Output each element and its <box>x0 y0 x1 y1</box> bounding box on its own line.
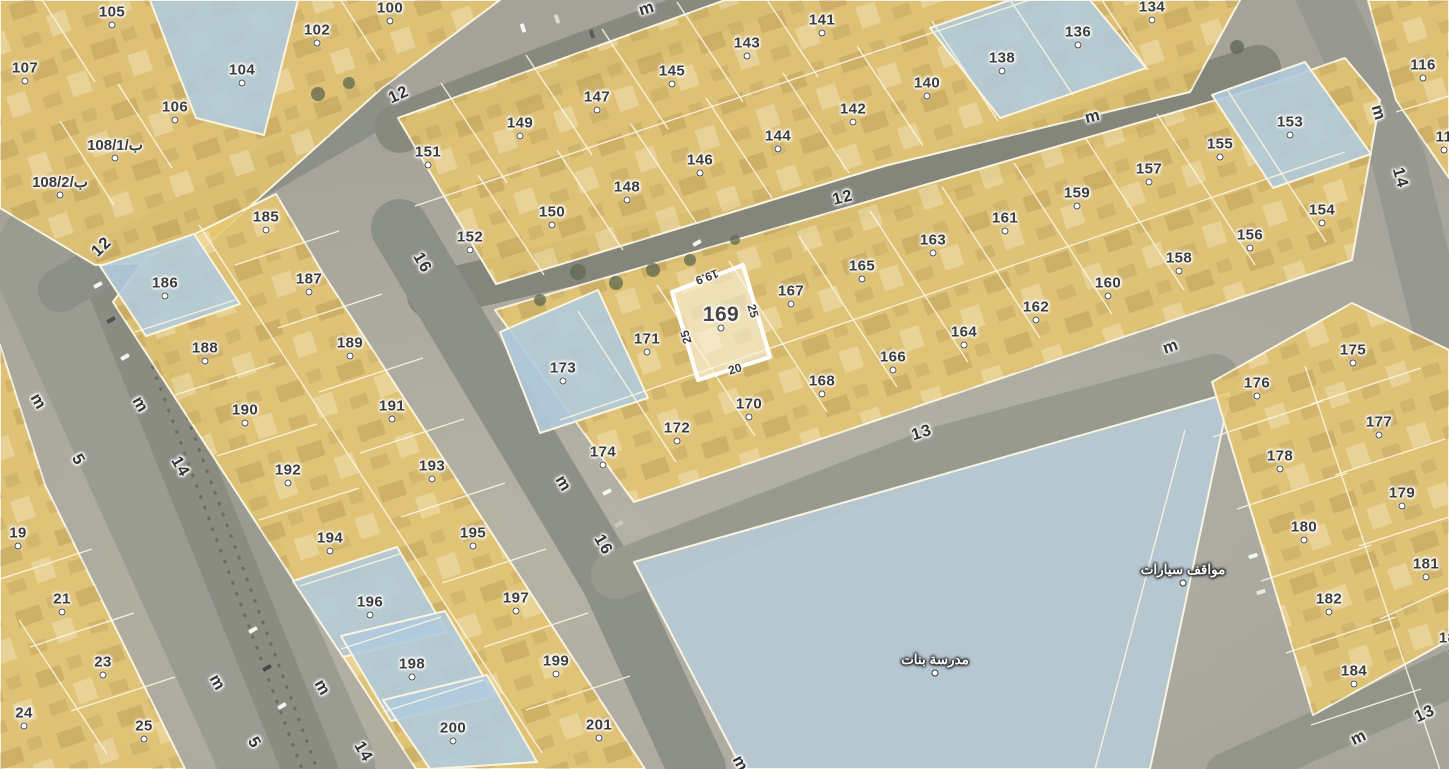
parcel-label-188[interactable]: 188 <box>192 340 218 357</box>
parcel-label-190[interactable]: 190 <box>232 402 258 419</box>
parcel-label-184[interactable]: 184 <box>1341 663 1367 680</box>
dimension-label-2: 25 <box>744 303 761 320</box>
parcel-label-102[interactable]: 102 <box>304 22 330 39</box>
parcel-label-197[interactable]: 197 <box>503 590 529 607</box>
parcel-label-192[interactable]: 192 <box>275 462 301 479</box>
parcel-marker-161 <box>1002 228 1009 235</box>
parcel-label-163[interactable]: 163 <box>920 232 946 249</box>
parcel-label-189[interactable]: 189 <box>337 335 363 352</box>
parcel-label-181[interactable]: 181 <box>1413 556 1439 573</box>
parcel-marker-184 <box>1351 681 1358 688</box>
parcel-label-169[interactable]: 169 <box>703 303 739 327</box>
parcel-label-167[interactable]: 167 <box>778 283 804 300</box>
parcel-label-159[interactable]: 159 <box>1064 185 1090 202</box>
street-label-m-22: m <box>728 753 752 769</box>
parcel-label-191[interactable]: 191 <box>379 398 405 415</box>
parcel-marker-11 <box>1441 147 1448 154</box>
parcel-marker-156 <box>1247 245 1254 252</box>
parcel-label-194[interactable]: 194 <box>317 530 343 547</box>
parcel-marker-153 <box>1287 132 1294 139</box>
parcel-label-172[interactable]: 172 <box>664 420 690 437</box>
parcel-label-166[interactable]: 166 <box>880 349 906 366</box>
parcel-label-24[interactable]: 24 <box>15 705 33 722</box>
parcel-label-199[interactable]: 199 <box>543 653 569 670</box>
street-label-13-20: 13 <box>1412 701 1439 727</box>
street-label-m-18: m <box>310 676 334 699</box>
dimension-label-0: 19.9 <box>694 266 721 287</box>
parcel-label-162[interactable]: 162 <box>1023 299 1049 316</box>
street-label-m-4: m <box>1083 106 1103 128</box>
street-label-m-0: m <box>637 0 658 20</box>
parcel-marker-100 <box>387 18 394 25</box>
street-label-m-21: m <box>1348 726 1370 750</box>
parcel-marker-157 <box>1146 179 1153 186</box>
parcel-label-175[interactable]: 175 <box>1340 342 1366 359</box>
parcel-marker-177 <box>1376 432 1383 439</box>
street-label-5-13: 5 <box>67 451 89 469</box>
parcel-marker-158 <box>1176 268 1183 275</box>
area-marker-0 <box>932 670 939 677</box>
parcel-label-158[interactable]: 158 <box>1166 250 1192 267</box>
parcel-label-168[interactable]: 168 <box>809 373 835 390</box>
parcel-label-195[interactable]: 195 <box>460 525 486 542</box>
parcel-label-153[interactable]: 153 <box>1277 114 1303 131</box>
parcel-marker-169 <box>718 325 725 332</box>
parcel-marker-198 <box>409 674 416 681</box>
parcel-label-176[interactable]: 176 <box>1244 375 1270 392</box>
parcel-marker-166 <box>890 367 897 374</box>
street-label-16-9: 16 <box>590 531 617 558</box>
parcel-marker-197 <box>513 608 520 615</box>
parcel-marker-191 <box>389 416 396 423</box>
parcel-marker-196 <box>367 612 374 619</box>
parcel-marker-25 <box>141 736 148 743</box>
parcel-marker-180 <box>1301 537 1308 544</box>
parcel-label-149[interactable]: 149 <box>507 115 533 132</box>
parcel-label-100[interactable]: 100 <box>377 0 403 17</box>
parcel-marker-134 <box>1149 17 1156 24</box>
parcel-label-145[interactable]: 145 <box>659 63 685 80</box>
street-label-m-11: m <box>1160 335 1181 358</box>
parcel-marker-194 <box>327 548 334 555</box>
street-label-13-10: 13 <box>909 421 934 445</box>
parcel-label-178[interactable]: 178 <box>1267 448 1293 465</box>
street-label-m-5: m <box>1367 103 1390 123</box>
parcel-marker-200 <box>450 738 457 745</box>
parcel-marker-187 <box>306 289 313 296</box>
parcel-marker-138 <box>999 68 1006 75</box>
parcel-marker-186 <box>162 293 169 300</box>
parcel-label-136[interactable]: 136 <box>1065 24 1091 41</box>
parcel-label-107[interactable]: 107 <box>12 60 38 77</box>
parcel-marker-159 <box>1074 203 1081 210</box>
parcel-marker-104 <box>239 80 246 87</box>
parcel-label-160[interactable]: 160 <box>1095 275 1121 292</box>
parcel-marker-105 <box>109 22 116 29</box>
parcel-marker-154 <box>1319 220 1326 227</box>
parcel-marker-143 <box>744 53 751 60</box>
parcel-label-173[interactable]: 173 <box>550 360 576 377</box>
parcel-label-201[interactable]: 201 <box>586 717 612 734</box>
map-viewport[interactable]: 105107106104102100ب/108/1ب/108/215114914… <box>0 0 1449 769</box>
street-label-12-1: 12 <box>386 82 413 108</box>
parcel-marker-24 <box>21 723 28 730</box>
street-label-m-12: m <box>26 390 50 413</box>
parcel-marker-141 <box>819 30 826 37</box>
parcel-marker-140 <box>924 93 931 100</box>
parcel-marker-149 <box>517 133 524 140</box>
parcel-marker-171 <box>644 349 651 356</box>
parcel-label-177[interactable]: 177 <box>1366 414 1392 431</box>
parcel-marker-199 <box>553 671 560 678</box>
parcel-marker-201 <box>596 735 603 742</box>
parcel-label-174[interactable]: 174 <box>590 444 616 461</box>
parcel-marker-170 <box>746 414 753 421</box>
parcel-label-21[interactable]: 21 <box>53 591 71 608</box>
parcel-label-182[interactable]: 182 <box>1316 591 1342 608</box>
parcel-label-179[interactable]: 179 <box>1389 485 1415 502</box>
parcel-marker---108-1 <box>112 155 119 162</box>
parcel-label-116[interactable]: 116 <box>1410 57 1435 74</box>
parcel-label-157[interactable]: 157 <box>1136 161 1162 178</box>
parcel-marker-192 <box>285 480 292 487</box>
street-label-14-15: 14 <box>167 453 194 480</box>
parcel-label-155[interactable]: 155 <box>1207 136 1233 153</box>
parcel-label-193[interactable]: 193 <box>419 458 445 475</box>
parcel-label-185[interactable]: 185 <box>253 209 279 226</box>
parcel-label-180[interactable]: 180 <box>1291 519 1317 536</box>
parcel-marker-147 <box>594 107 601 114</box>
street-label-12-3: 12 <box>831 186 856 209</box>
parcel-label-164[interactable]: 164 <box>951 324 977 341</box>
area-label-0[interactable]: مدرسة بنات <box>901 652 969 668</box>
parcel-marker-190 <box>242 420 249 427</box>
parcel-marker-151 <box>425 162 432 169</box>
parcel-marker-165 <box>859 276 866 283</box>
area-marker-1 <box>1180 580 1187 587</box>
dimension-label-1: 25 <box>677 329 694 346</box>
parcel-marker-168 <box>819 391 826 398</box>
parcel-marker-19 <box>15 543 22 550</box>
parcel-marker-176 <box>1254 393 1261 400</box>
parcel-marker-150 <box>549 222 556 229</box>
parcel-label-170[interactable]: 170 <box>736 396 762 413</box>
parcel-marker-23 <box>100 672 107 679</box>
parcel-label---108-1[interactable]: ب/108/1 <box>87 136 143 154</box>
street-label-12-2: 12 <box>88 233 116 261</box>
parcel-label-138[interactable]: 138 <box>989 50 1015 67</box>
parcel-marker-146 <box>697 170 704 177</box>
map-labels-layer: 105107106104102100ب/108/1ب/108/215114914… <box>0 0 1449 769</box>
parcel-marker-145 <box>669 81 676 88</box>
street-label-14-19: 14 <box>350 738 377 765</box>
dimension-label-3: 20 <box>727 360 744 377</box>
parcel-label-104[interactable]: 104 <box>229 62 255 79</box>
parcel-marker-144 <box>775 146 782 153</box>
parcel-marker-148 <box>624 197 631 204</box>
parcel-marker-142 <box>850 119 857 126</box>
parcel-label-140[interactable]: 140 <box>914 75 940 92</box>
parcel-label-134[interactable]: 134 <box>1139 0 1165 16</box>
parcel-label-156[interactable]: 156 <box>1237 227 1263 244</box>
parcel-marker-164 <box>961 342 968 349</box>
parcel-marker-173 <box>560 378 567 385</box>
parcel-marker-185 <box>263 227 270 234</box>
parcel-label-143[interactable]: 143 <box>734 35 760 52</box>
parcel-label-165[interactable]: 165 <box>849 258 875 275</box>
street-label-14-6: 14 <box>1388 165 1412 190</box>
parcel-marker-189 <box>347 353 354 360</box>
parcel-marker-188 <box>202 358 209 365</box>
street-label-m-14: m <box>128 393 152 416</box>
parcel-label-183[interactable]: 183 <box>1439 630 1449 647</box>
parcel-label-11[interactable]: 11 <box>1436 129 1449 146</box>
parcel-marker-136 <box>1075 42 1082 49</box>
parcel-marker-21 <box>59 609 66 616</box>
parcel-label---108-2[interactable]: ب/108/2 <box>32 173 88 191</box>
parcel-label-105[interactable]: 105 <box>99 4 125 21</box>
parcel-marker-163 <box>930 250 937 257</box>
parcel-marker-160 <box>1105 293 1112 300</box>
parcel-label-186[interactable]: 186 <box>152 275 178 292</box>
parcel-label-198[interactable]: 198 <box>399 656 425 673</box>
parcel-marker-179 <box>1399 503 1406 510</box>
street-label-5-17: 5 <box>243 734 265 752</box>
parcel-marker-178 <box>1277 466 1284 473</box>
parcel-marker-175 <box>1350 360 1357 367</box>
parcel-marker-152 <box>467 247 474 254</box>
parcel-label-171[interactable]: 171 <box>634 331 660 348</box>
parcel-label-147[interactable]: 147 <box>584 89 610 106</box>
street-label-16-7: 16 <box>409 249 436 276</box>
parcel-label-154[interactable]: 154 <box>1309 202 1335 219</box>
parcel-label-161[interactable]: 161 <box>992 210 1018 227</box>
parcel-label-142[interactable]: 142 <box>840 101 866 118</box>
street-label-m-8: m <box>551 472 575 495</box>
parcel-marker-102 <box>314 40 321 47</box>
parcel-marker-162 <box>1033 317 1040 324</box>
parcel-label-141[interactable]: 141 <box>809 12 835 29</box>
parcel-marker-172 <box>674 438 681 445</box>
parcel-marker-193 <box>429 476 436 483</box>
parcel-label-144[interactable]: 144 <box>765 128 791 145</box>
parcel-label-148[interactable]: 148 <box>614 179 640 196</box>
parcel-label-187[interactable]: 187 <box>296 271 322 288</box>
parcel-marker-174 <box>600 462 607 469</box>
parcel-marker-182 <box>1326 609 1333 616</box>
area-label-1[interactable]: مواقف سيارات <box>1141 562 1226 578</box>
parcel-label-200[interactable]: 200 <box>440 720 466 737</box>
parcel-marker---108-2 <box>57 192 64 199</box>
parcel-label-196[interactable]: 196 <box>357 594 383 611</box>
parcel-label-25[interactable]: 25 <box>135 718 153 735</box>
parcel-label-146[interactable]: 146 <box>687 152 713 169</box>
parcel-marker-106 <box>172 117 179 124</box>
parcel-marker-155 <box>1217 154 1224 161</box>
parcel-label-19[interactable]: 19 <box>9 525 27 542</box>
street-label-m-16: m <box>205 671 229 694</box>
parcel-label-152[interactable]: 152 <box>457 229 483 246</box>
parcel-label-23[interactable]: 23 <box>94 654 112 671</box>
parcel-marker-181 <box>1423 574 1430 581</box>
parcel-label-150[interactable]: 150 <box>539 204 565 221</box>
parcel-marker-195 <box>470 543 477 550</box>
parcel-label-106[interactable]: 106 <box>162 99 188 116</box>
parcel-label-151[interactable]: 151 <box>415 144 441 161</box>
parcel-marker-107 <box>22 78 29 85</box>
parcel-marker-116 <box>1420 75 1427 82</box>
parcel-marker-167 <box>788 301 795 308</box>
